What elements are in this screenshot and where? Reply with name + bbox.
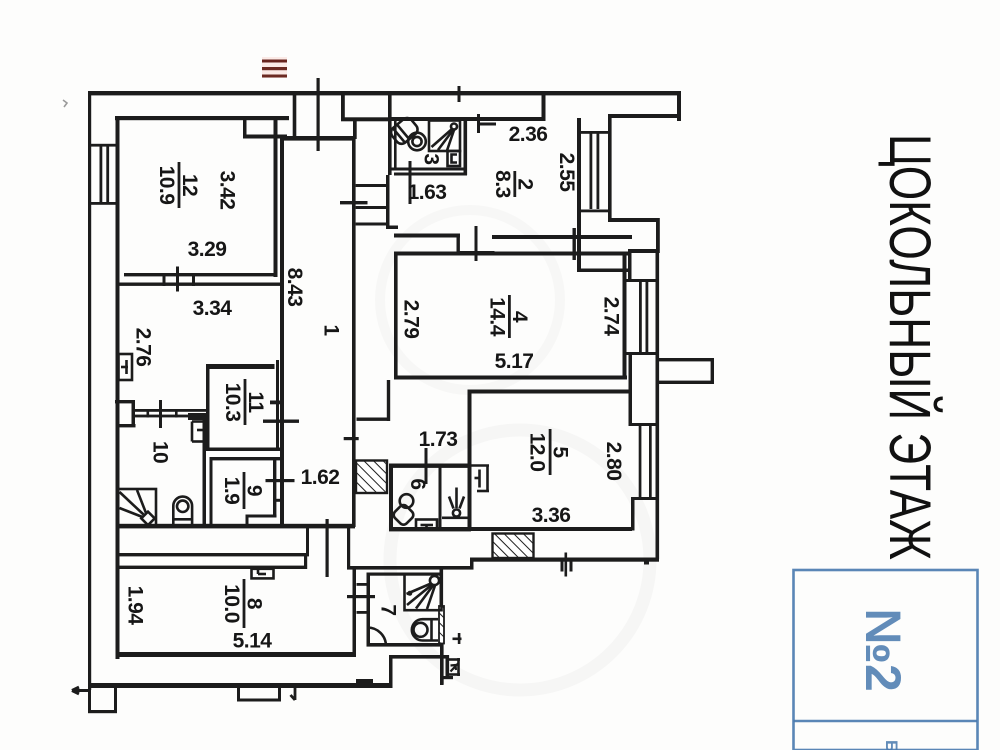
svg-text:3: 3 bbox=[420, 153, 443, 164]
svg-text:1.63: 1.63 bbox=[408, 181, 447, 204]
svg-text:ЦОКОЛЬНЫЙ ЭТАЖ: ЦОКОЛЬНЫЙ ЭТАЖ bbox=[877, 134, 942, 560]
svg-text:1.9: 1.9 bbox=[220, 477, 243, 505]
svg-text:3.36: 3.36 bbox=[532, 504, 571, 527]
svg-text:2.76: 2.76 bbox=[132, 328, 155, 367]
svg-text:4: 4 bbox=[508, 311, 531, 323]
svg-text:3.34: 3.34 bbox=[193, 297, 233, 320]
svg-text:1.94: 1.94 bbox=[124, 586, 147, 626]
svg-text:5: 5 bbox=[549, 446, 572, 458]
svg-text:14.4: 14.4 bbox=[486, 297, 509, 337]
svg-text:2.36: 2.36 bbox=[509, 123, 548, 146]
svg-text:10.9: 10.9 bbox=[155, 166, 178, 205]
svg-text:3.42: 3.42 bbox=[216, 171, 239, 210]
svg-text:7: 7 bbox=[377, 604, 400, 615]
svg-text:2.79: 2.79 bbox=[400, 300, 423, 339]
svg-text:3.29: 3.29 bbox=[188, 238, 227, 261]
svg-text:8.43: 8.43 bbox=[283, 268, 306, 307]
svg-text:10: 10 bbox=[149, 441, 172, 463]
svg-text:БТ: БТ bbox=[882, 740, 901, 750]
svg-text:1: 1 bbox=[320, 324, 343, 336]
svg-text:8: 8 bbox=[243, 598, 266, 610]
svg-text:№2: №2 bbox=[855, 608, 911, 692]
svg-text:6: 6 bbox=[406, 478, 429, 489]
svg-text:2.74: 2.74 bbox=[600, 297, 623, 337]
svg-text:2.80: 2.80 bbox=[602, 442, 625, 481]
svg-text:10.0: 10.0 bbox=[220, 584, 243, 623]
svg-text:9: 9 bbox=[243, 485, 266, 496]
svg-text:1.73: 1.73 bbox=[419, 428, 458, 451]
svg-text:8.3: 8.3 bbox=[491, 170, 514, 198]
svg-text:10.3: 10.3 bbox=[221, 383, 244, 422]
svg-text:5.17: 5.17 bbox=[495, 350, 534, 373]
svg-text:11: 11 bbox=[244, 391, 267, 413]
svg-text:12: 12 bbox=[178, 174, 201, 196]
svg-text:12.0: 12.0 bbox=[526, 433, 549, 472]
svg-text:1.62: 1.62 bbox=[301, 466, 340, 489]
svg-text:5.14: 5.14 bbox=[233, 630, 273, 653]
svg-text:2: 2 bbox=[514, 178, 537, 189]
svg-text:2.55: 2.55 bbox=[555, 153, 578, 193]
